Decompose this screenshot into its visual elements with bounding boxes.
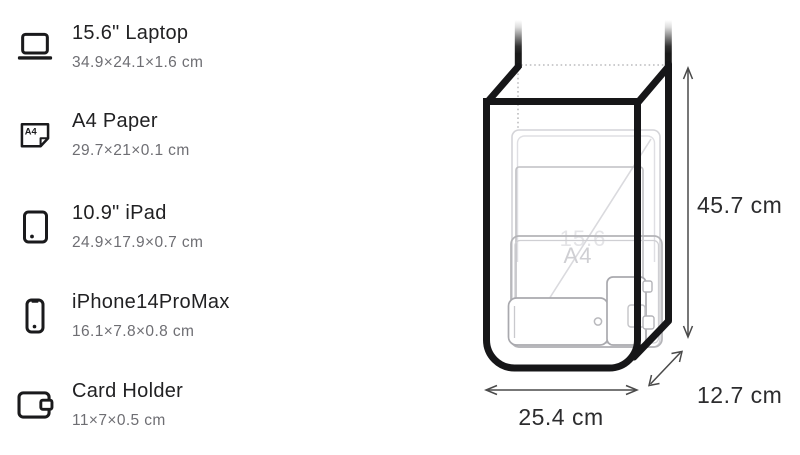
size-comparison-panel: { "items": [ { "icon": "laptop-icon", "n… [0,0,800,455]
bag-content-iphone-outline [509,298,609,345]
bag-top-left-edge [487,67,519,104]
a4-watermark: A4 [564,243,593,268]
width-dimension-label: 25.4 cm [518,404,603,430]
bag-strap-left [515,20,522,68]
bag-dimension-diagram: 15.6 A4 [0,0,800,455]
height-dimension-label: 45.7 cm [697,192,782,218]
depth-dimension-label: 12.7 cm [697,382,782,408]
depth-dimension-line [651,353,681,385]
bag-top-right-edge [638,67,669,104]
